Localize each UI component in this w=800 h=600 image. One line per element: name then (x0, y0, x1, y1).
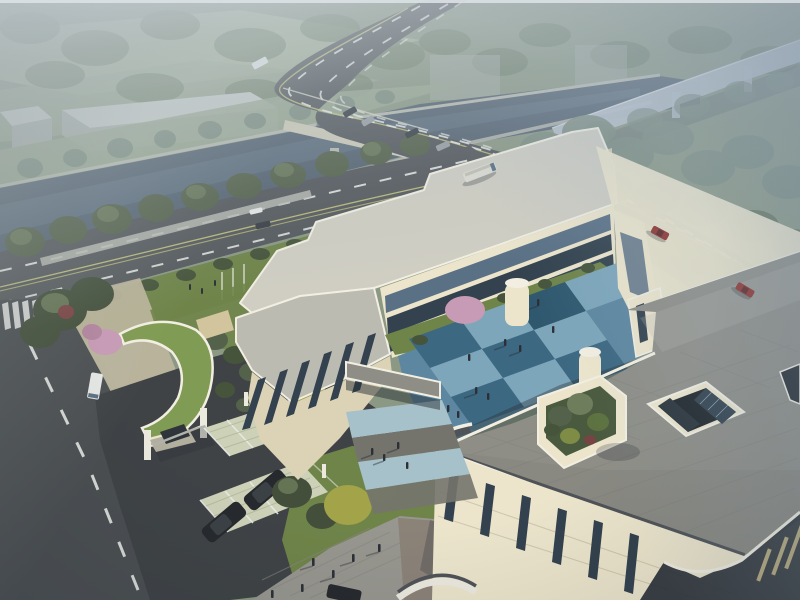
tree-canopy (642, 121, 694, 155)
person (214, 280, 216, 286)
person (301, 584, 304, 592)
tree-canopy-highlight (97, 206, 119, 222)
person (406, 462, 408, 469)
person (447, 405, 449, 412)
tree-canopy (116, 73, 184, 103)
person (457, 411, 459, 418)
person (397, 442, 399, 449)
stair-drum (505, 278, 529, 326)
tree-canopy (560, 428, 580, 444)
shrub (412, 335, 428, 345)
tree-canopy (61, 30, 129, 66)
person (271, 590, 274, 598)
garden-shadow (596, 443, 640, 461)
blossom-tree (82, 324, 102, 340)
tree-canopy (567, 393, 593, 415)
tree-canopy (107, 138, 133, 158)
rendering-canvas (0, 0, 800, 600)
tree-canopy (724, 81, 756, 103)
tree-canopy (375, 90, 395, 104)
tree-canopy (20, 316, 60, 348)
shrub (544, 424, 560, 436)
tree-canopy (674, 94, 710, 118)
red-shrub (584, 435, 596, 445)
tree-canopy-highlight (363, 142, 381, 156)
tree-canopy (722, 135, 774, 169)
shrub (581, 263, 595, 273)
hedge-bush (213, 258, 233, 270)
blossom-tree (445, 296, 485, 324)
fence-post (322, 464, 326, 478)
tree-canopy (766, 72, 794, 92)
tree-canopy (63, 149, 87, 167)
fence-post (244, 392, 248, 406)
tree-canopy-highlight (278, 478, 298, 494)
red-shrub (58, 305, 74, 319)
tree-canopy (668, 26, 732, 54)
person (504, 339, 506, 346)
tree-canopy (198, 121, 222, 139)
tree-canopy (548, 406, 572, 426)
person (332, 570, 335, 578)
tree-canopy (17, 158, 43, 178)
person (352, 554, 355, 562)
person (189, 284, 191, 290)
tree-canopy (138, 194, 174, 222)
architectural-rendering (0, 0, 800, 600)
tree-canopy (25, 61, 85, 89)
tree-canopy (587, 413, 609, 431)
person (487, 393, 489, 400)
person (475, 387, 477, 394)
tree-canopy (140, 10, 200, 40)
tree-canopy-highlight (274, 163, 294, 177)
hedge-bush (250, 248, 270, 260)
person (201, 288, 203, 294)
tree-canopy (400, 134, 430, 156)
tree-canopy (244, 113, 266, 129)
hedge-bush (176, 269, 196, 281)
person (468, 354, 470, 361)
tree-canopy (519, 23, 571, 47)
shrub (538, 279, 552, 289)
tree-canopy (315, 151, 349, 177)
drum-top (505, 278, 529, 288)
yellow-tree (324, 485, 372, 525)
drum-top (579, 347, 601, 357)
person (378, 544, 381, 552)
tree-canopy (0, 12, 60, 44)
person (519, 345, 521, 352)
tree-canopy-highlight (10, 229, 32, 245)
shrub (215, 382, 235, 398)
tree-canopy (226, 173, 262, 199)
person (537, 299, 539, 306)
person (383, 454, 385, 461)
person (552, 326, 554, 333)
tree-canopy (70, 277, 114, 311)
person (371, 448, 373, 455)
tree-canopy (214, 28, 286, 62)
person (312, 558, 315, 566)
gate-pillar (144, 430, 151, 460)
distant-building (430, 55, 500, 100)
drum-body (505, 283, 529, 326)
tree-canopy-highlight (186, 185, 206, 199)
tree-canopy (419, 29, 471, 55)
tree-canopy (49, 216, 87, 244)
tree-canopy (154, 130, 176, 148)
